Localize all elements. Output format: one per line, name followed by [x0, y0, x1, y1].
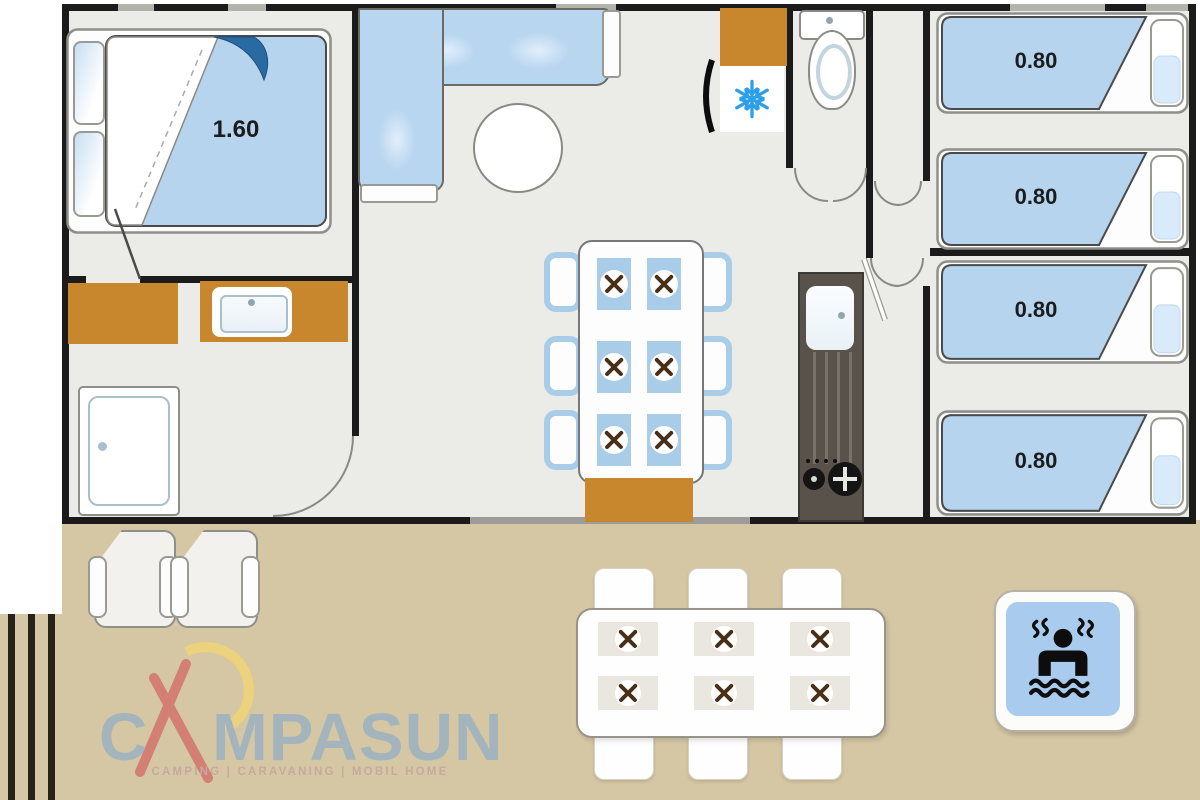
vent-line	[849, 352, 852, 464]
outdoor-placemat	[790, 676, 850, 710]
lounge-chair	[92, 528, 174, 626]
outdoor-placemat	[790, 622, 850, 656]
faucet-icon	[248, 299, 255, 306]
wall-bathroom-right	[352, 276, 359, 436]
outdoor-placemat	[694, 622, 754, 656]
lounge-chair	[174, 528, 256, 626]
placemat	[647, 414, 681, 466]
dining-chair	[544, 410, 582, 470]
wall-wc-left	[786, 4, 793, 168]
dining-chair	[544, 252, 582, 312]
single-bed-2: 0.80	[936, 148, 1189, 250]
single-bed-size-label: 0.80	[976, 48, 1096, 74]
kitchen-faucet-icon	[838, 312, 845, 319]
wall-bathroom-top-a	[62, 276, 86, 283]
logo-letter-c: C	[99, 704, 147, 771]
toilet-button-icon	[826, 17, 833, 24]
placemat	[597, 258, 631, 310]
window	[1010, 4, 1105, 11]
double-bed-size-label: 1.60	[176, 116, 296, 144]
lounge-chair-armrest	[170, 556, 189, 618]
single-bed-3: 0.80	[936, 260, 1189, 364]
single-bed-size-label: 0.80	[976, 297, 1096, 323]
stove-knob	[806, 459, 810, 463]
outdoor-placemat	[598, 676, 658, 710]
wall-bedroom3-left	[923, 286, 930, 524]
jacuzzi-sign-panel	[1006, 602, 1120, 716]
terrace-steps	[0, 614, 62, 800]
placemat	[597, 414, 631, 466]
window	[228, 4, 266, 11]
stove-knob	[824, 459, 828, 463]
sofa-vertical	[358, 8, 444, 192]
floor-plan: 1.60	[0, 0, 1200, 800]
dining-bench	[585, 478, 693, 522]
shower-inner	[88, 396, 170, 506]
logo-tagline: CAMPING | CARAVANING | MOBIL HOME	[150, 766, 450, 778]
single-bed-1: 0.80	[936, 12, 1189, 114]
snowflake-icon	[730, 77, 774, 121]
sofa-armrest-right	[602, 10, 621, 78]
logo-letters-rest: MPASUN	[212, 704, 503, 771]
bathroom-counter-left	[68, 283, 178, 344]
single-bed-size-label: 0.80	[976, 448, 1096, 474]
wall-bedroom2-left	[923, 4, 930, 181]
outdoor-placemat	[694, 676, 754, 710]
placemat	[647, 258, 681, 310]
double-bed: 1.60	[66, 28, 332, 234]
dining-chair	[544, 336, 582, 396]
kitchen-cabinet	[720, 8, 787, 66]
fridge	[720, 66, 784, 132]
vent-line	[837, 352, 840, 464]
jacuzzi-swimmer-icon	[1016, 612, 1110, 706]
outdoor-placemat	[598, 622, 658, 656]
lounge-chair-armrest	[241, 556, 260, 618]
sofa-armrest-bottom	[360, 184, 438, 203]
toilet-bowl-inner	[816, 44, 852, 100]
vent-line	[813, 352, 816, 464]
single-bed-4: 0.80	[936, 410, 1189, 516]
wall-wc-right	[866, 4, 873, 258]
stove-burner-large-icon	[828, 462, 862, 496]
stove-burner-small-icon	[803, 468, 825, 490]
stove-knob	[833, 459, 837, 463]
window	[118, 4, 154, 11]
shower-drain-icon	[98, 442, 107, 451]
stove-knob	[815, 459, 819, 463]
round-table	[473, 103, 563, 193]
placemat	[647, 341, 681, 393]
window	[1146, 4, 1188, 11]
vent-line	[825, 352, 828, 464]
lounge-chair-armrest	[88, 556, 107, 618]
single-bed-size-label: 0.80	[976, 184, 1096, 210]
kitchen-sink	[806, 286, 854, 350]
placemat	[597, 341, 631, 393]
